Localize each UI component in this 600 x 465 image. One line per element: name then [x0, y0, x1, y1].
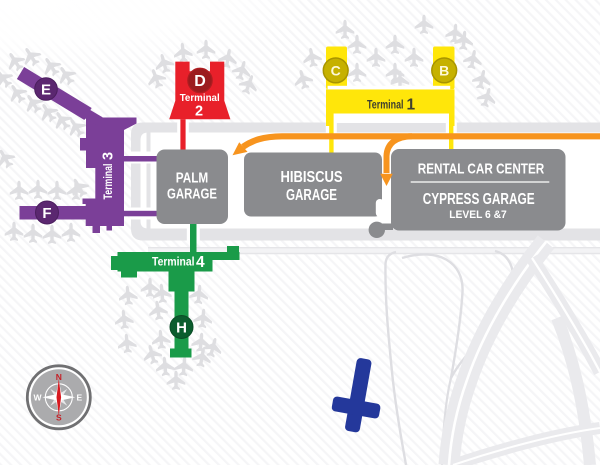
svg-text:HIBISCUS: HIBISCUS — [281, 169, 343, 186]
svg-text:Terminal: Terminal — [367, 97, 404, 111]
svg-text:F: F — [42, 205, 51, 222]
svg-text:E: E — [76, 392, 82, 402]
svg-text:4: 4 — [196, 254, 205, 271]
svg-text:1: 1 — [407, 97, 416, 114]
svg-text:S: S — [56, 412, 62, 422]
svg-text:N: N — [56, 372, 62, 382]
svg-text:E: E — [41, 81, 51, 98]
svg-text:GARAGE: GARAGE — [286, 187, 337, 204]
svg-text:2: 2 — [195, 103, 203, 119]
svg-text:Terminal: Terminal — [101, 164, 115, 200]
svg-text:CYPRESS GARAGE: CYPRESS GARAGE — [423, 191, 535, 208]
svg-text:D: D — [194, 73, 206, 90]
svg-text:W: W — [33, 392, 42, 402]
svg-text:RENTAL CAR CENTER: RENTAL CAR CENTER — [418, 162, 545, 178]
svg-text:GARAGE: GARAGE — [167, 187, 217, 203]
svg-text:B: B — [439, 63, 449, 79]
svg-text:LEVEL 6 &7: LEVEL 6 &7 — [449, 209, 507, 221]
svg-text:H: H — [176, 319, 187, 336]
svg-text:PALM: PALM — [176, 171, 209, 187]
svg-text:3: 3 — [101, 152, 117, 160]
svg-text:C: C — [331, 63, 341, 79]
svg-text:Terminal: Terminal — [180, 92, 220, 104]
svg-text:Terminal: Terminal — [152, 257, 195, 269]
